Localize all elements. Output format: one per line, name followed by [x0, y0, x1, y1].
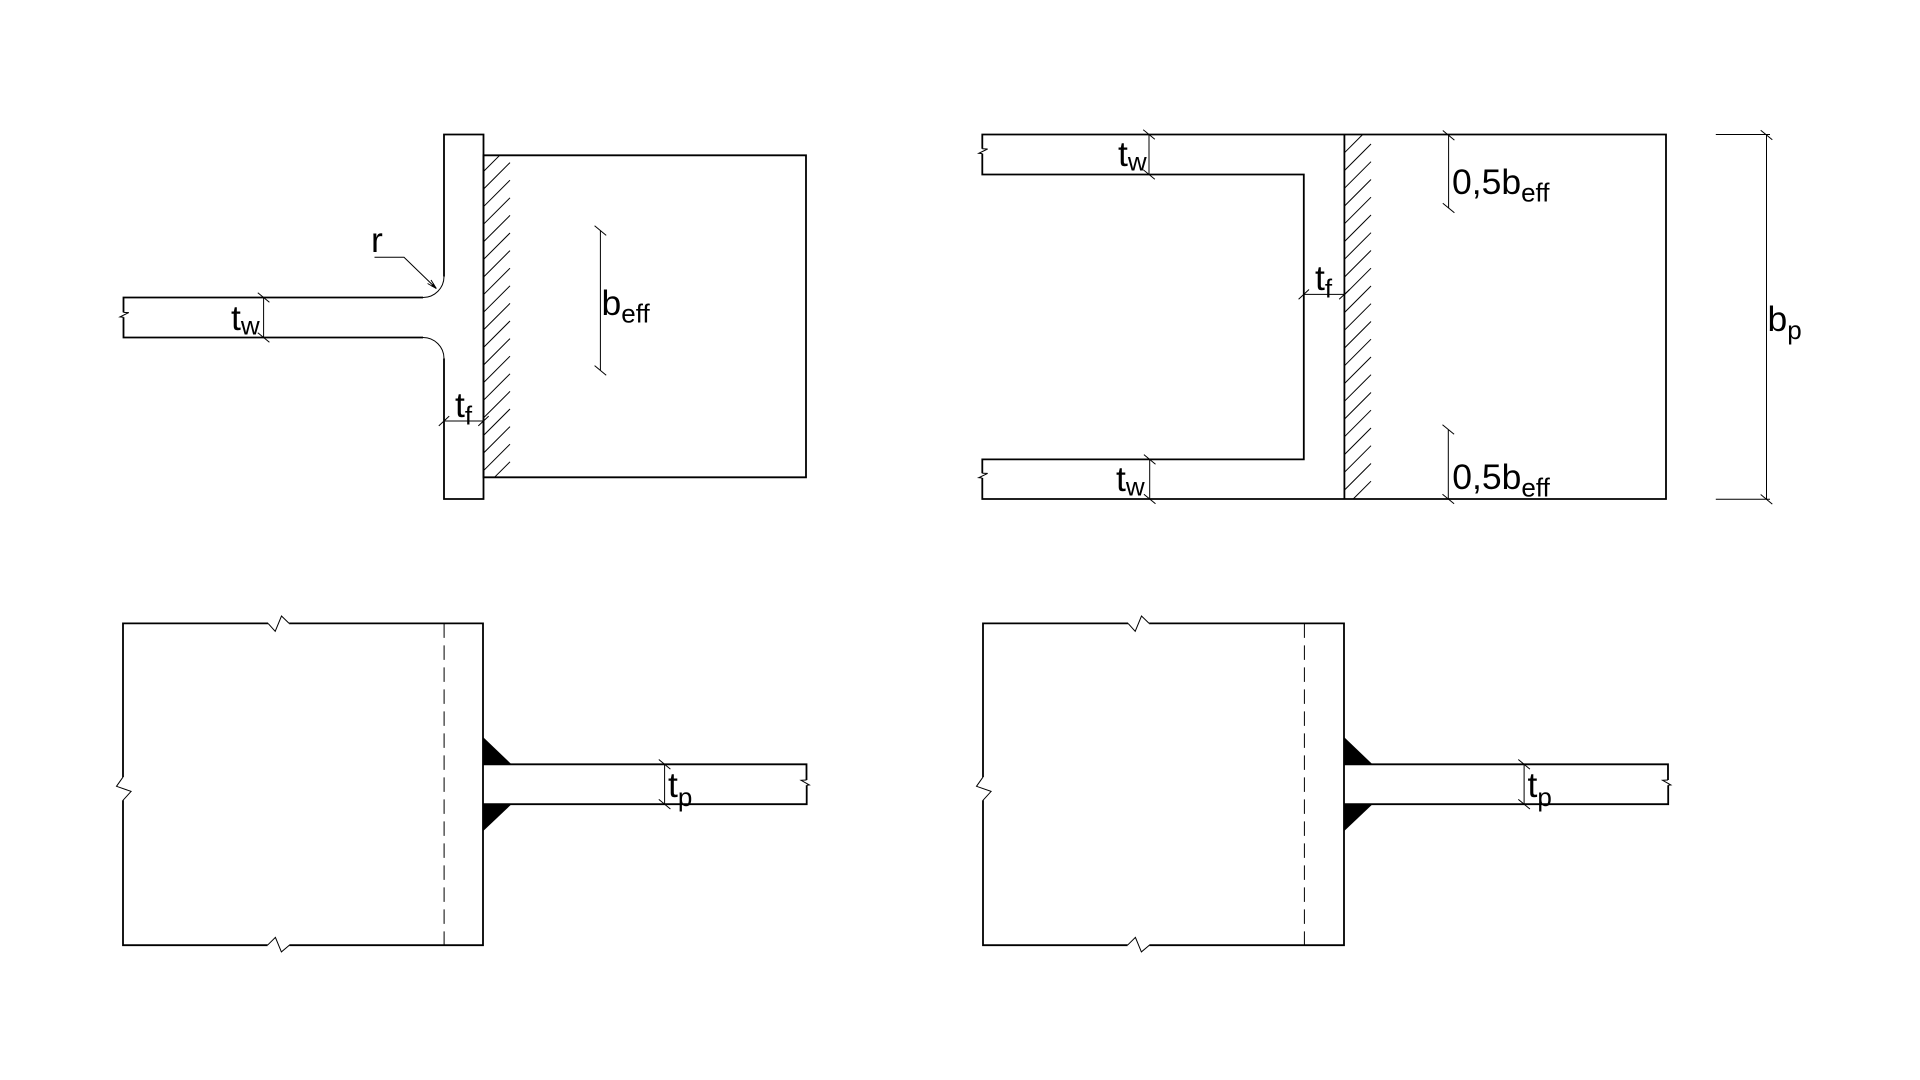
- svg-text:r: r: [371, 220, 383, 260]
